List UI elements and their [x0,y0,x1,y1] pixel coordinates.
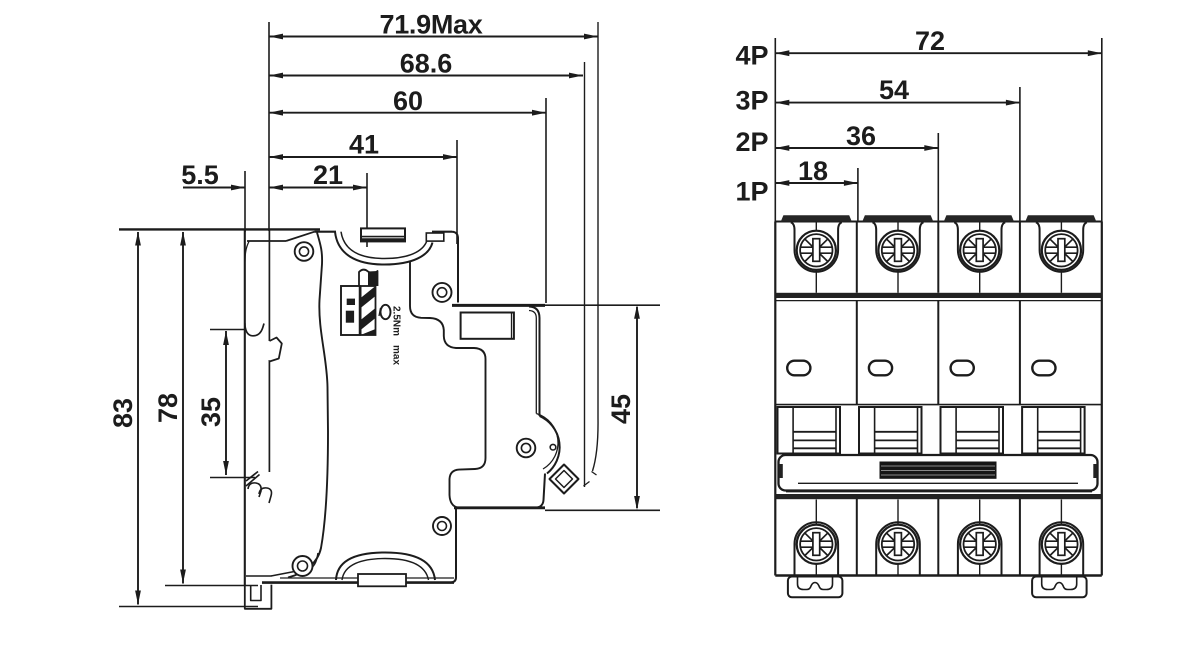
svg-text:71.9Max: 71.9Max [380,10,483,40]
svg-text:60: 60 [393,86,423,116]
svg-text:72: 72 [915,26,945,56]
svg-text:max: max [391,345,402,365]
svg-text:18: 18 [798,156,828,186]
svg-text:68.6: 68.6 [400,49,453,79]
svg-text:3P: 3P [735,86,768,116]
svg-text:36: 36 [846,121,876,151]
svg-text:2P: 2P [735,127,768,157]
svg-text:4P: 4P [735,41,768,71]
svg-text:35: 35 [196,397,226,427]
svg-text:78: 78 [153,393,183,423]
svg-text:1P: 1P [735,177,768,207]
svg-text:83: 83 [108,398,138,428]
svg-text:2.5Nm: 2.5Nm [391,306,402,336]
svg-text:5.5: 5.5 [181,160,219,190]
svg-text:54: 54 [879,75,909,105]
svg-text:45: 45 [606,394,636,424]
svg-text:21: 21 [313,160,343,190]
svg-text:41: 41 [349,130,379,160]
